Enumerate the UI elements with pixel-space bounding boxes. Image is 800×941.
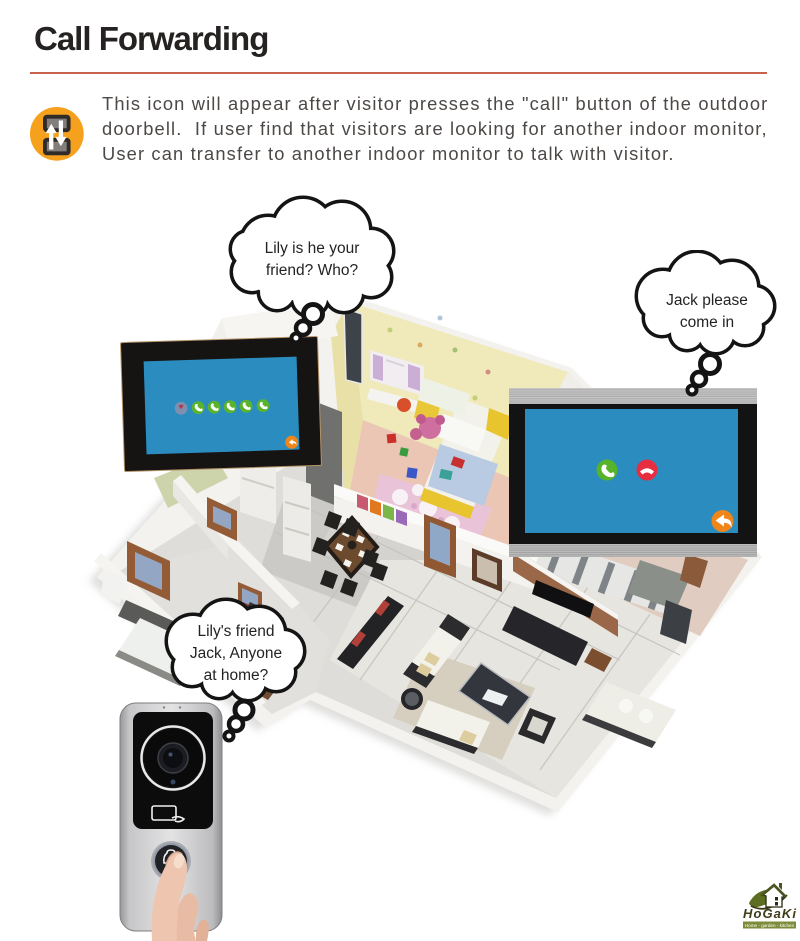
svg-text:Jack please: Jack please (666, 292, 748, 309)
svg-text:Home - garden - kitchen: Home - garden - kitchen (745, 923, 795, 928)
svg-text:Lily is he your: Lily is he your (265, 240, 360, 257)
svg-text:come in: come in (680, 314, 734, 331)
svg-text:at home?: at home? (204, 667, 269, 684)
svg-text:Lily's friend: Lily's friend (197, 623, 274, 640)
svg-text:friend? Who?: friend? Who? (266, 262, 359, 279)
svg-text:HoGaKi: HoGaKi (743, 906, 796, 921)
svg-text:Jack, Anyone: Jack, Anyone (190, 645, 282, 662)
